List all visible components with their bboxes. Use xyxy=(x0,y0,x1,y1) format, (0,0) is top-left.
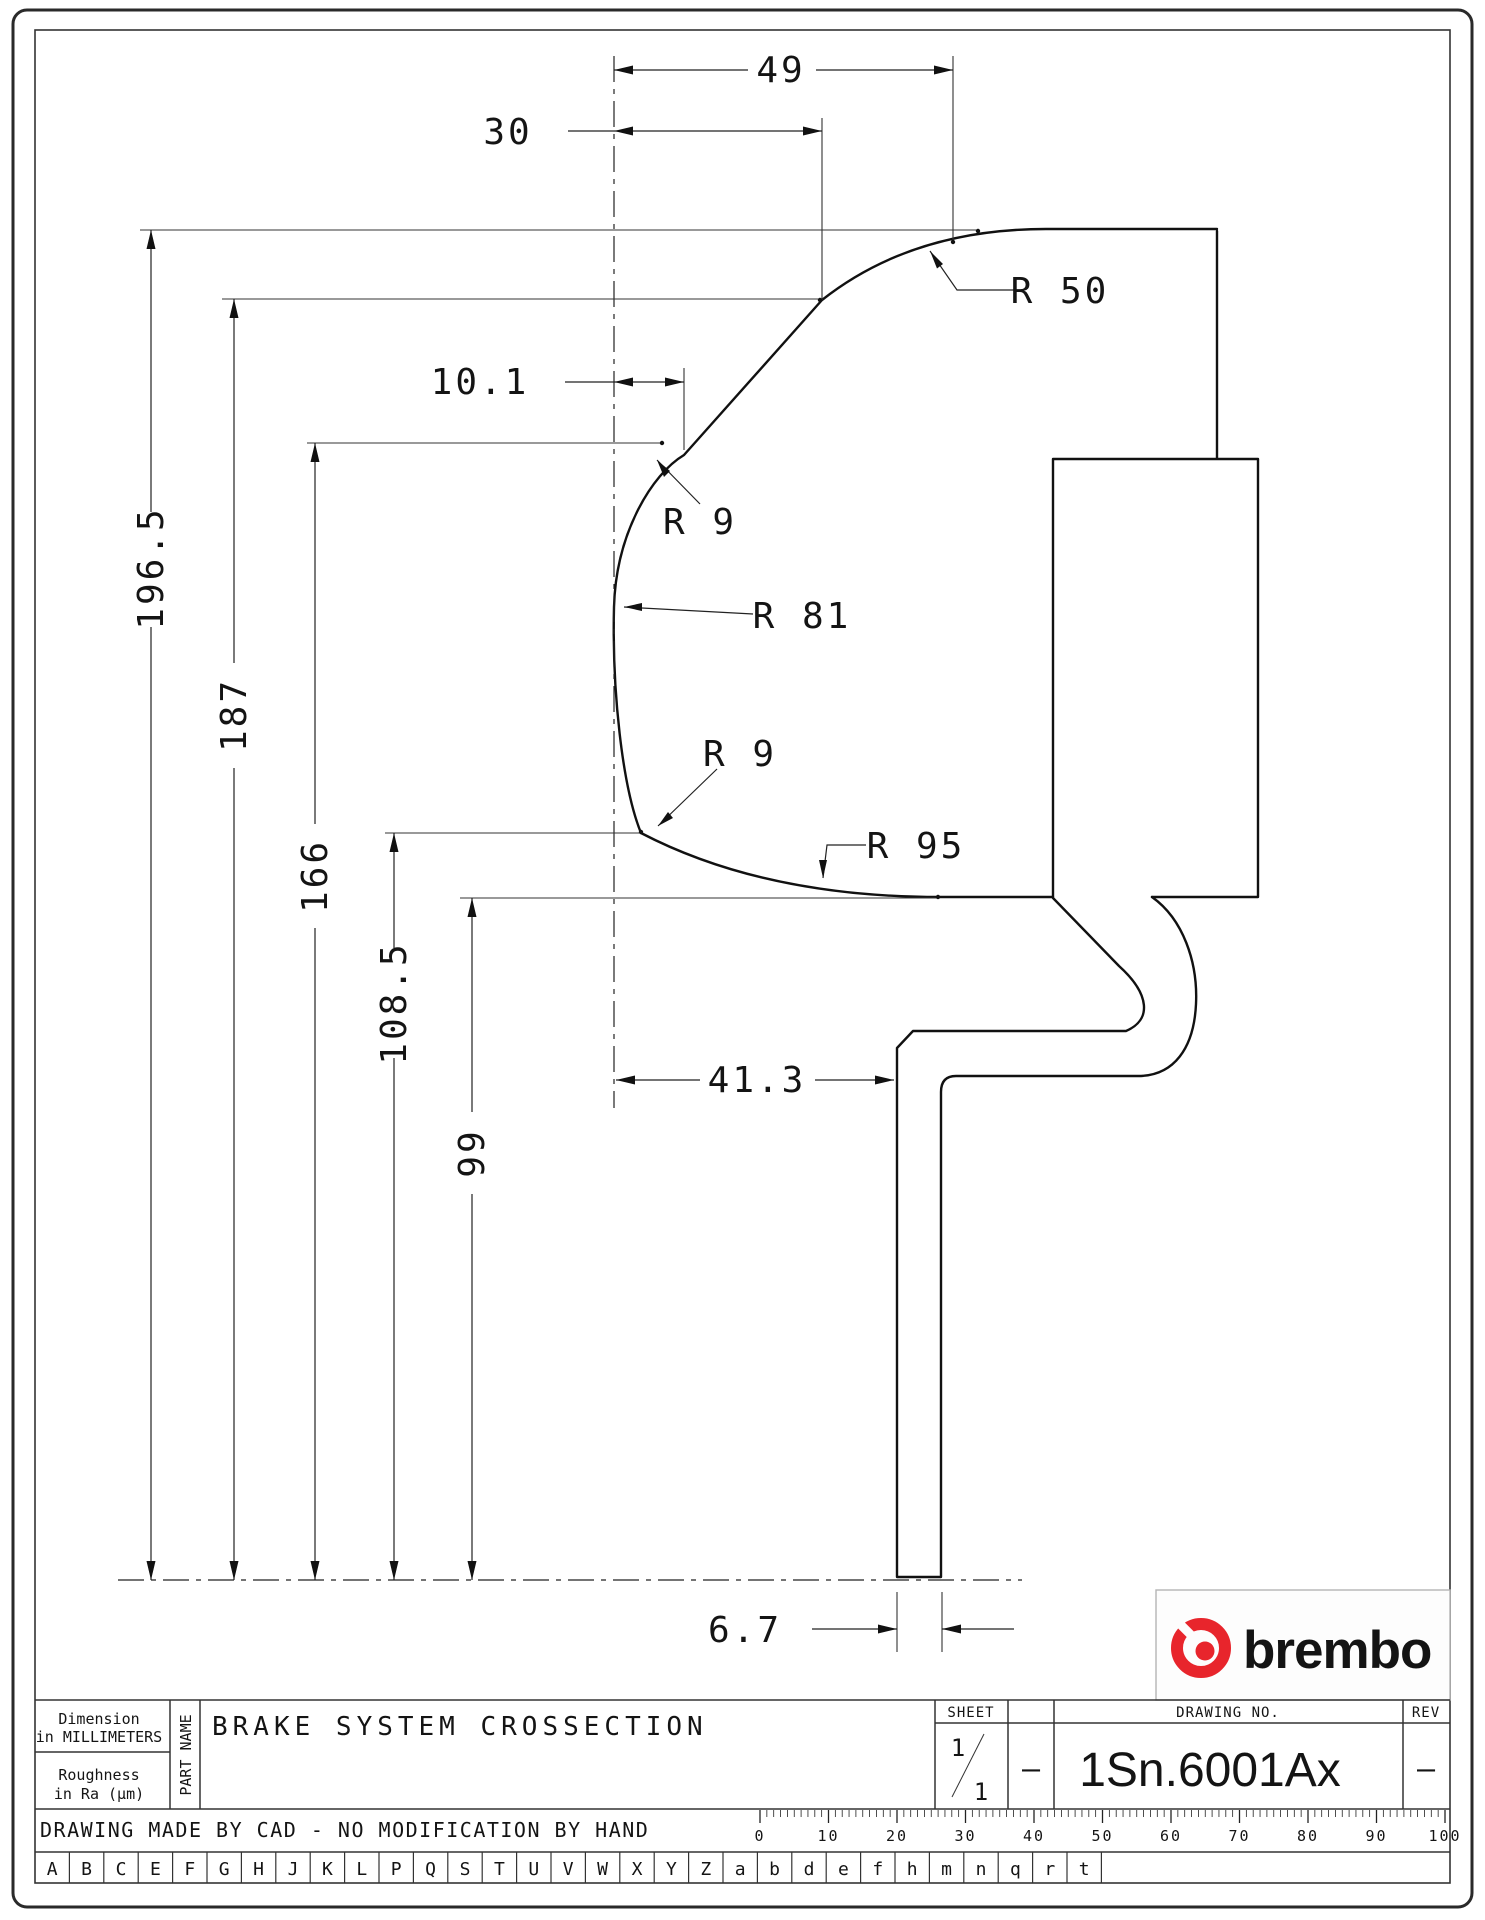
part-name-value: BRAKE SYSTEM CROSSECTION xyxy=(212,1712,708,1742)
sheet-denominator: 1 xyxy=(974,1778,988,1806)
letter-cell: W xyxy=(597,1859,608,1880)
letter-cell: E xyxy=(150,1859,161,1880)
radius-label-r50: R 50 xyxy=(1011,271,1110,312)
letter-cell: n xyxy=(976,1859,987,1880)
dim-label-99: 99 xyxy=(452,1128,493,1177)
leader-r95 xyxy=(823,845,866,878)
radius-label-r95: R 95 xyxy=(867,826,966,867)
letter-cell: G xyxy=(219,1859,230,1880)
dim-label-108_5: 108.5 xyxy=(374,941,415,1064)
ruler-label: 30 xyxy=(954,1827,976,1845)
ext-dot xyxy=(936,895,940,899)
letter-cell: C xyxy=(116,1859,127,1880)
dim-label-49: 49 xyxy=(756,50,805,91)
letter-cell: q xyxy=(1010,1859,1021,1880)
letter-cell: P xyxy=(391,1859,402,1880)
letter-cell: V xyxy=(563,1859,574,1880)
dim-label-6_7: 6.7 xyxy=(708,1610,782,1651)
dim-label-30: 30 xyxy=(483,112,532,153)
letter-cell: h xyxy=(907,1859,918,1880)
ruler-label: 60 xyxy=(1160,1827,1182,1845)
dim-label-187: 187 xyxy=(214,678,255,752)
dim-label-196_5: 196.5 xyxy=(131,506,172,629)
letter-cell: K xyxy=(322,1859,333,1880)
sheet-header: SHEET xyxy=(947,1705,994,1721)
part-outline-left-profile xyxy=(614,229,1217,897)
dim-label-41_3: 41.3 xyxy=(708,1060,807,1101)
letter-cell: Q xyxy=(425,1859,436,1880)
letter-cell: Y xyxy=(666,1859,677,1880)
letter-cell: F xyxy=(184,1859,195,1880)
hat-s-wall-and-channel xyxy=(897,897,1196,1577)
letter-cell: T xyxy=(494,1859,505,1880)
letter-cell: L xyxy=(356,1859,367,1880)
letter-cell: m xyxy=(941,1859,952,1880)
ext-dot xyxy=(976,229,980,233)
letter-cell: S xyxy=(460,1859,471,1880)
ruler-label: 80 xyxy=(1297,1827,1319,1845)
rev-header: REV xyxy=(1412,1705,1440,1721)
drawing-no-header: DRAWING NO. xyxy=(1176,1705,1280,1721)
dim-label-10_1: 10.1 xyxy=(431,362,530,403)
roughness-note-line2: in Ra (μm) xyxy=(54,1785,144,1803)
sheet-numerator: 1 xyxy=(951,1734,965,1762)
ext-dot xyxy=(951,240,955,244)
letter-cell: e xyxy=(838,1859,849,1880)
ruler-label: 20 xyxy=(886,1827,908,1845)
letter-index-row: ABCEFGHJKLPQSTUVWXYZabdefhmnqrt xyxy=(47,1852,1102,1883)
ruler-label: 70 xyxy=(1228,1827,1250,1845)
drawing-no-value: 1Sn.6001Ax xyxy=(1079,1744,1341,1797)
logo-wordmark: brembo xyxy=(1243,1621,1431,1680)
scale-ruler: 0102030405060708090100 xyxy=(754,1810,1461,1845)
leader-r81 xyxy=(624,607,753,614)
letter-cell: t xyxy=(1079,1859,1090,1880)
cad-note: DRAWING MADE BY CAD - NO MODIFICATION BY… xyxy=(40,1818,649,1842)
letter-cell: U xyxy=(528,1859,539,1880)
letter-cell: J xyxy=(288,1859,299,1880)
ext-dot xyxy=(639,830,643,834)
ruler-label: 90 xyxy=(1365,1827,1387,1845)
letter-cell: A xyxy=(47,1859,58,1880)
dimension-arrowheads xyxy=(147,66,962,1634)
sheet-dash: – xyxy=(1022,1752,1041,1787)
letter-cell: a xyxy=(735,1859,746,1880)
leader-r50 xyxy=(930,251,1014,290)
letter-cell: b xyxy=(769,1859,780,1880)
letter-cell: f xyxy=(872,1859,883,1880)
part-name-header: PART NAME xyxy=(177,1714,195,1795)
roughness-note-line1: Roughness xyxy=(58,1766,139,1784)
ext-dot xyxy=(818,298,822,302)
radius-label-r9-lower: R 9 xyxy=(703,734,777,775)
ruler-label: 0 xyxy=(754,1827,765,1845)
letter-cell: Z xyxy=(700,1859,711,1880)
units-note-line1: Dimension xyxy=(58,1710,139,1728)
ext-dot xyxy=(660,441,664,445)
units-note-line2: in MILLIMETERS xyxy=(36,1728,162,1746)
cad-drawing-canvas: 49 30 10.1 41.3 6.7 196.5 187 166 108.5 … xyxy=(0,0,1485,1920)
letter-cell: H xyxy=(253,1859,264,1880)
letter-cell: d xyxy=(804,1859,815,1880)
letter-cell: r xyxy=(1044,1859,1055,1880)
rev-value: – xyxy=(1417,1752,1436,1787)
radius-label-r9-upper: R 9 xyxy=(663,502,737,543)
radius-label-r81: R 81 xyxy=(753,596,852,637)
ruler-label: 100 xyxy=(1428,1827,1461,1845)
letter-cell: X xyxy=(632,1859,643,1880)
ruler-label: 10 xyxy=(817,1827,839,1845)
brembo-logo: brembo xyxy=(1156,1590,1450,1700)
ruler-label: 50 xyxy=(1091,1827,1113,1845)
pad-rectangle xyxy=(1053,459,1258,897)
letter-cell: B xyxy=(81,1859,92,1880)
ruler-label: 40 xyxy=(1023,1827,1045,1845)
dim-label-166: 166 xyxy=(295,839,336,913)
